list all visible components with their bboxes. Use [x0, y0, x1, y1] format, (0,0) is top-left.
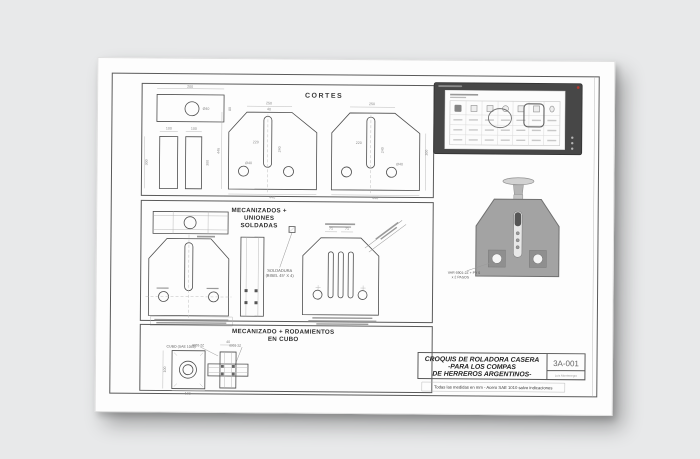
- render-view: VAR 6901-2Z + PY 5 x 2 PASOS: [448, 177, 560, 280]
- frame-fold-line: [592, 77, 595, 397]
- title-line-1: CROQUIS DE ROLADORA CASERA: [425, 356, 540, 364]
- drawing-canvas: CORTES: [96, 58, 615, 415]
- knob-disc: [503, 178, 534, 185]
- dim-label: 300: [425, 150, 429, 156]
- dim-label: 71: [329, 227, 333, 231]
- dim-label: 240: [381, 147, 385, 153]
- mecanizados-title-3: SOLDADAS: [240, 222, 277, 229]
- bearing-label-left: 6901-2Z: [192, 343, 204, 347]
- window-title-text: [438, 85, 462, 87]
- dim-label: 80: [228, 107, 232, 111]
- dim-label: 300: [145, 159, 149, 165]
- dim-label: 240: [278, 146, 282, 152]
- viewer-background: CORTES: [0, 0, 700, 459]
- dim-label: 250: [369, 102, 375, 106]
- mecanizados-title-1: MECANIZADOS +: [232, 207, 287, 214]
- soldadura-label-2: (BISEL 45° X 4): [266, 273, 295, 278]
- catalog-icon: [454, 105, 461, 112]
- dim-label: 250: [266, 101, 272, 105]
- dim-label: 220: [253, 140, 259, 144]
- dim-label: Ø40: [245, 161, 252, 165]
- rodamientos-title-1: MECANIZADO + RODAMIENTOS: [232, 328, 335, 336]
- page-heading-bar: [450, 94, 478, 96]
- dim-label: 100: [166, 127, 172, 131]
- dim-label: 40: [267, 107, 271, 111]
- embedded-window: [434, 83, 583, 155]
- close-icon: [577, 86, 580, 89]
- drawing-code: 3A-001: [553, 359, 579, 368]
- dim-label: Ø40: [396, 162, 403, 166]
- menu-dots-icon: [571, 136, 573, 138]
- dim-label: 300: [206, 160, 210, 166]
- dim-label: 220: [356, 141, 362, 145]
- diagonal-note: [375, 222, 400, 242]
- general-note: Todas las medidas en mm - Acero SAE 1010…: [434, 384, 552, 390]
- dim-label: 440: [269, 195, 275, 199]
- cortes-panel: CORTES: [141, 83, 434, 197]
- cortes-title: CORTES: [305, 93, 343, 100]
- drawing-author: Luis Montenegro: [555, 374, 578, 378]
- dim-label: 40: [226, 340, 230, 344]
- rodamientos-panel: MECANIZADO + RODAMIENTOS EN CUBO CUBO (S…: [140, 324, 433, 392]
- render-label-2: x 2 PASOS: [452, 275, 470, 279]
- dim-label: 71: [345, 227, 349, 231]
- dim-label: 446: [217, 148, 221, 154]
- mecanizados-panel: MECANIZADOS + UNIONES SOLDADAS: [140, 200, 433, 327]
- dim-label: 100: [163, 366, 167, 372]
- rodamientos-title-2: EN CUBO: [268, 336, 299, 343]
- title-block: CROQUIS DE ROLADORA CASERA -PARA LOS COM…: [418, 352, 585, 392]
- dim-label: 100: [185, 392, 191, 396]
- dim-label: Ø40: [203, 107, 210, 111]
- dim-label: 440: [372, 196, 378, 200]
- mecanizados-title-2: UNIONES: [244, 215, 274, 222]
- dim-label: 200: [187, 85, 193, 89]
- title-line-3: DE HERREROS ARGENTINOS-: [432, 371, 532, 379]
- dim-label: 100: [191, 127, 197, 131]
- drawing-sheet: CORTES: [95, 57, 616, 416]
- bearing-label-right: 6901-2Z: [229, 344, 241, 348]
